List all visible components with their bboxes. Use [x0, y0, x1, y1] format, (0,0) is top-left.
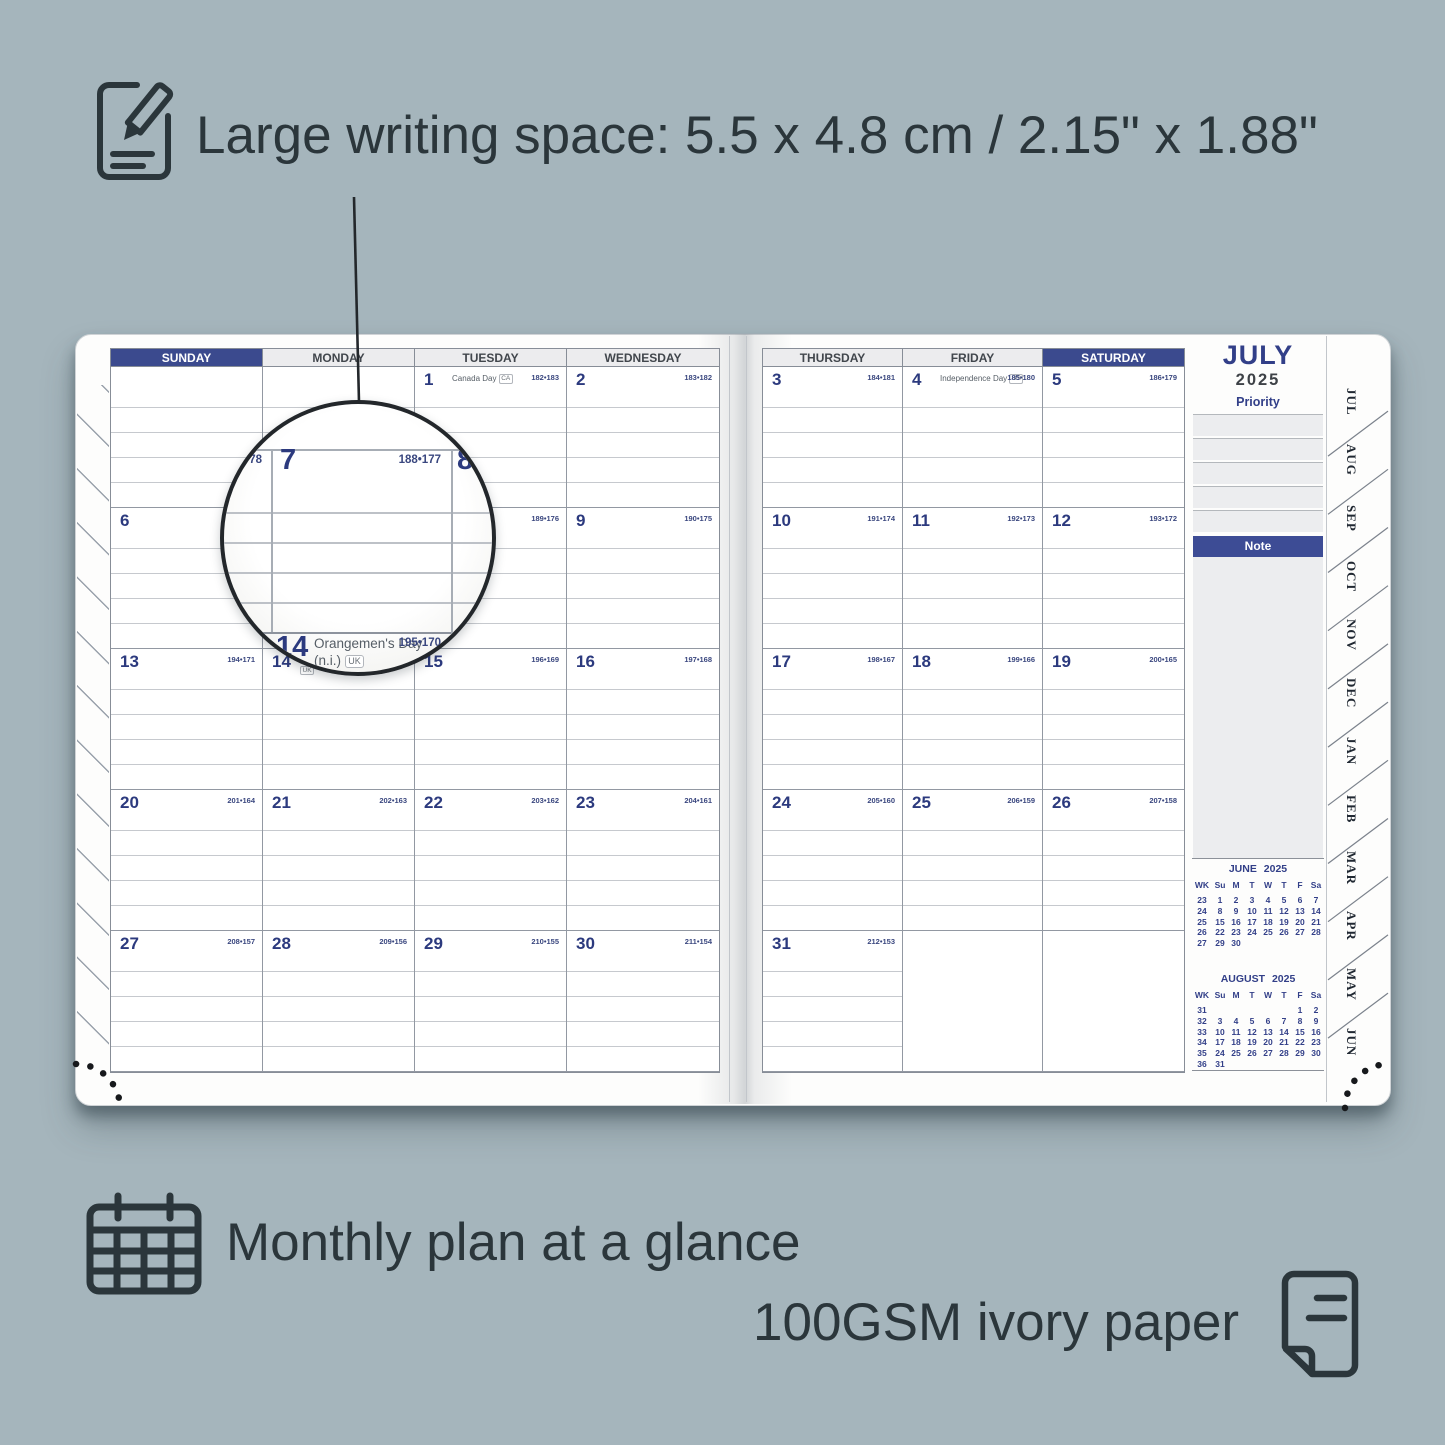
day-number: 19	[1052, 652, 1071, 672]
writing-line	[763, 739, 902, 740]
day-cell	[1043, 931, 1184, 1072]
month-tab: OCT	[1338, 554, 1364, 600]
writing-line	[111, 1046, 262, 1047]
writing-line	[903, 764, 1042, 765]
mini-calendar-cell: 36	[1192, 1059, 1212, 1070]
writing-line	[1043, 482, 1184, 483]
day-of-year: 193•172	[1149, 514, 1177, 523]
mini-calendar-header-cell: F	[1292, 988, 1308, 1005]
mini-calendar-cell: 25	[1192, 917, 1212, 928]
mini-calendar-cell: 6	[1292, 895, 1308, 906]
day-cell: 30211•154	[567, 931, 719, 1072]
magnified-column-border	[451, 449, 453, 676]
mini-calendar-cell: 12	[1244, 1027, 1260, 1038]
mini-calendar-header-cell: T	[1244, 988, 1260, 1005]
writing-line	[1043, 457, 1184, 458]
writing-line	[415, 1046, 566, 1047]
day-cell: 29210•155	[415, 931, 567, 1072]
day-number: 30	[576, 934, 595, 954]
gutter-crease-line	[729, 336, 730, 1102]
mini-calendar-header-cell: Sa	[1308, 988, 1324, 1005]
writing-line	[415, 407, 566, 408]
mini-calendar-cell: 13	[1260, 1027, 1276, 1038]
month-tab-label: FEB	[1343, 795, 1359, 823]
writing-line	[263, 739, 414, 740]
writing-line	[1043, 739, 1184, 740]
day-cell: 20201•164	[111, 790, 263, 931]
writing-line	[763, 971, 902, 972]
writing-line	[111, 714, 262, 715]
tabs-left-separator	[1326, 336, 1327, 1102]
writing-line	[567, 855, 719, 856]
writing-line	[763, 880, 902, 881]
day-cell: 23204•161	[567, 790, 719, 931]
day-of-year: 199•166	[1007, 655, 1035, 664]
day-header-cell: TUESDAY	[415, 349, 567, 367]
day-number: 29	[424, 934, 443, 954]
mini-calendar-cell: 2	[1228, 895, 1244, 906]
mini-calendar-cell: 18	[1228, 1037, 1244, 1048]
day-of-year: 207•158	[1149, 796, 1177, 805]
writing-line	[1043, 855, 1184, 856]
mini-calendar-cell: 32	[1192, 1016, 1212, 1027]
mini-calendar-cell	[1212, 1005, 1228, 1016]
mini-calendar-cell: 3	[1212, 1016, 1228, 1027]
month-tab: MAY	[1338, 961, 1364, 1007]
writing-line	[1043, 548, 1184, 549]
writing-line	[111, 432, 262, 433]
writing-line	[263, 714, 414, 715]
mini-calendar-cell: 18	[1260, 917, 1276, 928]
writing-line	[903, 830, 1042, 831]
writing-line	[763, 548, 902, 549]
day-number: 12	[1052, 511, 1071, 531]
writing-line	[415, 1021, 566, 1022]
month-tab: MAR	[1338, 845, 1364, 891]
mini-calendar-cell: 20	[1260, 1037, 1276, 1048]
day-number: 5	[1052, 370, 1061, 390]
month-tab: JUN	[1338, 1019, 1364, 1065]
writing-line	[763, 689, 902, 690]
mini-calendar-cell: 33	[1192, 1027, 1212, 1038]
mini-calendar-cell: 21	[1308, 917, 1324, 928]
paper-text: 100GSM ivory paper	[753, 1292, 1239, 1353]
priority-row	[1193, 414, 1323, 436]
mini-calendar-grid: WKSuMTWTFSa23123456724891011121314251516…	[1192, 878, 1324, 949]
mini-calendar-cell: 16	[1228, 917, 1244, 928]
writing-line	[1043, 714, 1184, 715]
month-tab-label: AUG	[1343, 444, 1359, 476]
mini-calendar-cell: 1	[1212, 895, 1228, 906]
mini-calendar-cell: 15	[1292, 1027, 1308, 1038]
mini-calendar-cell: 26	[1192, 927, 1212, 938]
right-grid: THURSDAYFRIDAYSATURDAY3184•1814Independe…	[762, 348, 1185, 1073]
day-number: 13	[120, 652, 139, 672]
writing-line	[763, 714, 902, 715]
magnified-holiday-suffix: (n.i.)	[314, 653, 341, 668]
note-header: Note	[1193, 536, 1323, 557]
mini-calendar-cell: 23	[1228, 927, 1244, 938]
day-number: 4	[912, 370, 921, 390]
mini-calendar-cell: 10	[1212, 1027, 1228, 1038]
writing-line	[903, 623, 1042, 624]
day-header-cell: SATURDAY	[1043, 349, 1184, 367]
day-of-year: 209•156	[379, 937, 407, 946]
writing-line	[903, 573, 1042, 574]
day-cell: 12193•172	[1043, 508, 1184, 649]
writing-line	[111, 855, 262, 856]
day-number: 26	[1052, 793, 1071, 813]
writing-line	[415, 739, 566, 740]
writing-line	[263, 764, 414, 765]
day-of-year: 198•167	[867, 655, 895, 664]
mini-calendar-cell: 26	[1244, 1048, 1260, 1059]
day-number: 27	[120, 934, 139, 954]
mini-calendar-cell	[1260, 1005, 1276, 1016]
writing-line	[415, 830, 566, 831]
writing-line	[415, 855, 566, 856]
writing-line	[415, 905, 566, 906]
day-cell	[903, 931, 1043, 1072]
writing-line	[263, 855, 414, 856]
month-tab-label: MAR	[1343, 851, 1359, 885]
month-tab-label: SEP	[1343, 505, 1359, 532]
writing-line	[763, 764, 902, 765]
mini-calendar-header-cell: WK	[1192, 988, 1212, 1005]
mini-calendar-cell: 2	[1308, 1005, 1324, 1016]
writing-line	[567, 598, 719, 599]
day-of-year: 191•174	[867, 514, 895, 523]
sidebar-rule	[1192, 1070, 1324, 1071]
mini-calendar-cell: 22	[1292, 1037, 1308, 1048]
day-cell: 17198•167	[763, 649, 903, 790]
mini-calendar-cell: 8	[1292, 1016, 1308, 1027]
day-number: 3	[772, 370, 781, 390]
mini-calendar-title: AUGUST 2025	[1192, 973, 1324, 985]
mini-calendar-cell: 27	[1260, 1048, 1276, 1059]
mini-calendar-cell: 7	[1276, 1016, 1292, 1027]
day-number: 25	[912, 793, 931, 813]
day-of-year: 210•155	[531, 937, 559, 946]
month-tab: JAN	[1338, 728, 1364, 774]
day-cell: 4Independence Day US185•180	[903, 367, 1043, 508]
day-cell: 27208•157	[111, 931, 263, 1072]
writing-line	[111, 623, 262, 624]
mini-calendar-header-cell: W	[1260, 988, 1276, 1005]
mini-calendar-title: JUNE 2025	[1192, 863, 1324, 875]
writing-line	[567, 457, 719, 458]
mini-calendar-cell: 14	[1308, 906, 1324, 917]
mini-calendar-cell: 9	[1308, 1016, 1324, 1027]
writing-line	[763, 905, 902, 906]
mini-calendar-cell: 22	[1212, 927, 1228, 938]
monthly-plan-text: Monthly plan at a glance	[226, 1212, 801, 1273]
writing-line	[903, 739, 1042, 740]
magnified-day-of-year: 188•177	[344, 454, 441, 466]
note-box	[1193, 557, 1323, 858]
writing-line	[763, 623, 902, 624]
writing-line	[1043, 880, 1184, 881]
mini-calendar-header-cell: T	[1276, 988, 1292, 1005]
mini-calendar-header-cell: WK	[1192, 878, 1212, 895]
mini-calendar-cell: 17	[1212, 1037, 1228, 1048]
day-of-year: 190•175	[684, 514, 712, 523]
day-of-year: 184•181	[867, 373, 895, 382]
day-of-year: 203•162	[531, 796, 559, 805]
mini-calendar-cell	[1308, 938, 1324, 949]
day-cell: 3184•181	[763, 367, 903, 508]
day-of-year: 186•179	[1149, 373, 1177, 382]
day-of-year: 200•165	[1149, 655, 1177, 664]
mini-calendar-june: JUNE 2025WKSuMTWTFSa23123456724891011121…	[1192, 863, 1324, 949]
writing-line	[567, 407, 719, 408]
month-tab: NOV	[1338, 612, 1364, 658]
writing-line	[567, 905, 719, 906]
mini-calendar-cell	[1260, 1059, 1276, 1070]
mini-calendar-cell: 15	[1212, 917, 1228, 928]
writing-line	[763, 598, 902, 599]
mini-calendar-cell: 1	[1292, 1005, 1308, 1016]
day-of-year: 211•154	[685, 937, 712, 946]
mini-calendar-cell: 26	[1276, 927, 1292, 938]
day-number: 11	[912, 511, 930, 531]
month-tab: AUG	[1338, 437, 1364, 483]
day-number: 23	[576, 793, 595, 813]
mini-calendar-cell: 20	[1292, 917, 1308, 928]
mini-calendar-cell: 24	[1212, 1048, 1228, 1059]
mini-calendar-cell	[1260, 938, 1276, 949]
day-number: 1	[424, 370, 433, 390]
month-tab-label: JUN	[1343, 1028, 1359, 1056]
day-of-year: 185•180	[1007, 373, 1035, 382]
mini-calendar-cell: 12	[1276, 906, 1292, 917]
mini-calendar-cell: 25	[1260, 927, 1276, 938]
writing-line	[1043, 905, 1184, 906]
writing-line	[111, 905, 262, 906]
mini-calendar-cell	[1276, 1059, 1292, 1070]
writing-line	[567, 739, 719, 740]
day-header-cell: FRIDAY	[903, 349, 1043, 367]
mini-calendar-header-cell: F	[1292, 878, 1308, 895]
day-of-year: 201•164	[227, 796, 255, 805]
year-title: 2025	[1193, 371, 1323, 390]
writing-line	[111, 996, 262, 997]
mini-calendar-header-cell: T	[1244, 878, 1260, 895]
day-of-year: 206•159	[1007, 796, 1035, 805]
mini-calendar-cell: 23	[1308, 1037, 1324, 1048]
priority-row	[1193, 438, 1323, 460]
mini-calendar-cell: 21	[1276, 1037, 1292, 1048]
day-cell: 11192•173	[903, 508, 1043, 649]
day-cell: 25206•159	[903, 790, 1043, 931]
writing-line	[415, 996, 566, 997]
month-tab: SEP	[1338, 495, 1364, 541]
mini-calendar-cell	[1244, 938, 1260, 949]
writing-line	[415, 764, 566, 765]
writing-line	[763, 432, 902, 433]
month-tab-label: JUL	[1343, 388, 1359, 416]
writing-line	[903, 855, 1042, 856]
mini-calendar-header-cell: Su	[1212, 988, 1228, 1005]
day-number: 24	[772, 793, 791, 813]
writing-line	[763, 457, 902, 458]
month-tab: APR	[1338, 903, 1364, 949]
mini-calendar-cell: 27	[1292, 927, 1308, 938]
mini-calendar-cell: 17	[1244, 917, 1260, 928]
day-cell: 9190•175	[567, 508, 719, 649]
day-cell: 28209•156	[263, 931, 415, 1072]
writing-line	[415, 971, 566, 972]
mini-calendar-cell: 19	[1244, 1037, 1260, 1048]
day-of-year: 204•161	[684, 796, 712, 805]
magnified-day-number: 8	[457, 444, 473, 477]
month-title: JULY	[1193, 340, 1323, 371]
magnifier-circle: 78 7 188•177 8 14 Orangemen's Day (n.i.)…	[220, 400, 496, 676]
writing-line	[415, 689, 566, 690]
day-of-year: 205•160	[867, 796, 895, 805]
writing-line	[567, 714, 719, 715]
writing-line	[763, 407, 902, 408]
month-tab-label: MAY	[1343, 968, 1359, 1001]
writing-line	[1043, 764, 1184, 765]
mini-calendar-cell: 11	[1260, 906, 1276, 917]
writing-line	[567, 623, 719, 624]
writing-line	[415, 714, 566, 715]
month-tab: DEC	[1338, 670, 1364, 716]
writing-space-text: Large writing space: 5.5 x 4.8 cm / 2.15…	[196, 105, 1318, 166]
writing-line	[763, 482, 902, 483]
day-cell: 31212•153	[763, 931, 903, 1072]
mini-calendar-cell: 28	[1308, 927, 1324, 938]
mini-calendar-cell: 5	[1244, 1016, 1260, 1027]
day-header-cell: WEDNESDAY	[567, 349, 719, 367]
mini-calendar-cell: 30	[1228, 938, 1244, 949]
writing-line	[903, 714, 1042, 715]
writing-line	[111, 689, 262, 690]
writing-line	[903, 880, 1042, 881]
month-tab-label: OCT	[1343, 561, 1359, 592]
writing-line	[111, 764, 262, 765]
day-number: 10	[772, 511, 791, 531]
writing-line	[1043, 623, 1184, 624]
writing-line	[567, 689, 719, 690]
day-cell: 19200•165	[1043, 649, 1184, 790]
mini-calendar-header-cell: M	[1228, 878, 1244, 895]
mini-calendar-cell: 23	[1192, 895, 1212, 906]
day-cell: 26207•158	[1043, 790, 1184, 931]
writing-line	[567, 830, 719, 831]
mini-calendar-cell	[1292, 938, 1308, 949]
month-tab: JUL	[1338, 379, 1364, 425]
writing-line	[263, 1046, 414, 1047]
day-header-cell: SUNDAY	[111, 349, 263, 367]
writing-line	[903, 482, 1042, 483]
writing-line	[111, 739, 262, 740]
writing-line	[567, 996, 719, 997]
mini-calendar-cell: 28	[1276, 1048, 1292, 1059]
mini-calendar-cell	[1276, 938, 1292, 949]
writing-line	[903, 407, 1042, 408]
day-number: 2	[576, 370, 585, 390]
mini-calendar-august: AUGUST 2025WKSuMTWTFSa311232345678933101…	[1192, 973, 1324, 1070]
day-cell: 2183•182	[567, 367, 719, 508]
mini-calendar-cell: 13	[1292, 906, 1308, 917]
writing-line	[763, 1021, 902, 1022]
note-pencil-icon	[88, 72, 188, 184]
writing-line	[263, 830, 414, 831]
mini-calendar-cell: 31	[1212, 1059, 1228, 1070]
page-edge-hatch	[77, 385, 109, 1065]
writing-line	[263, 905, 414, 906]
mini-calendar-cell: 9	[1228, 906, 1244, 917]
writing-line	[415, 880, 566, 881]
mini-calendar-cell: 24	[1192, 906, 1212, 917]
day-number: 6	[120, 511, 129, 531]
mini-calendar-cell: 30	[1308, 1048, 1324, 1059]
day-of-year: 197•168	[684, 655, 712, 664]
day-number: 9	[576, 511, 585, 531]
day-number: 20	[120, 793, 139, 813]
mini-calendar-cell: 11	[1228, 1027, 1244, 1038]
mini-calendar-cell	[1244, 1059, 1260, 1070]
writing-line	[567, 971, 719, 972]
mini-calendar-cell	[1292, 1059, 1308, 1070]
mini-calendar-cell: 35	[1192, 1048, 1212, 1059]
writing-line	[111, 830, 262, 831]
magnified-day-number: 14	[276, 631, 308, 664]
writing-line	[763, 855, 902, 856]
mini-calendar-cell: 4	[1260, 895, 1276, 906]
month-tab: FEB	[1338, 786, 1364, 832]
writing-line	[567, 482, 719, 483]
month-tab-label: JAN	[1343, 737, 1359, 765]
mini-calendar-cell: 14	[1276, 1027, 1292, 1038]
mini-calendar-cell	[1308, 1059, 1324, 1070]
mini-calendar-cell	[1228, 1059, 1244, 1070]
day-header-cell: THURSDAY	[763, 349, 903, 367]
writing-line	[263, 971, 414, 972]
month-tab-label: DEC	[1343, 678, 1359, 708]
day-of-year: 196•169	[531, 655, 559, 664]
day-of-year: 189•176	[531, 514, 559, 523]
product-image: SUNDAYMONDAYTUESDAYWEDNESDAY1Canada Day …	[0, 0, 1445, 1445]
day-number: 16	[576, 652, 595, 672]
day-cell: 16197•168	[567, 649, 719, 790]
mini-calendar-cell: 8	[1212, 906, 1228, 917]
writing-line	[903, 598, 1042, 599]
day-number: 18	[912, 652, 931, 672]
day-of-year: 202•163	[379, 796, 407, 805]
mini-calendar-grid: WKSuMTWTFSa31123234567893310111213141516…	[1192, 988, 1324, 1070]
day-of-year: 212•153	[867, 937, 895, 946]
day-of-year: 194•171	[227, 655, 255, 664]
mini-calendar-cell: 4	[1228, 1016, 1244, 1027]
day-cell: 24205•160	[763, 790, 903, 931]
day-number: 22	[424, 793, 443, 813]
priority-box	[1193, 414, 1323, 534]
mini-calendar-cell	[1228, 1005, 1244, 1016]
mini-calendar-header-cell: T	[1276, 878, 1292, 895]
day-of-year: 192•173	[1007, 514, 1035, 523]
writing-line	[111, 971, 262, 972]
writing-line	[1043, 689, 1184, 690]
writing-line	[567, 1046, 719, 1047]
magnified-holiday-label: (n.i.) UK	[314, 653, 364, 668]
day-number: 28	[272, 934, 291, 954]
writing-line	[763, 996, 902, 997]
magnified-holiday-country-tag: UK	[345, 655, 365, 668]
mini-calendar-cell	[1276, 1005, 1292, 1016]
